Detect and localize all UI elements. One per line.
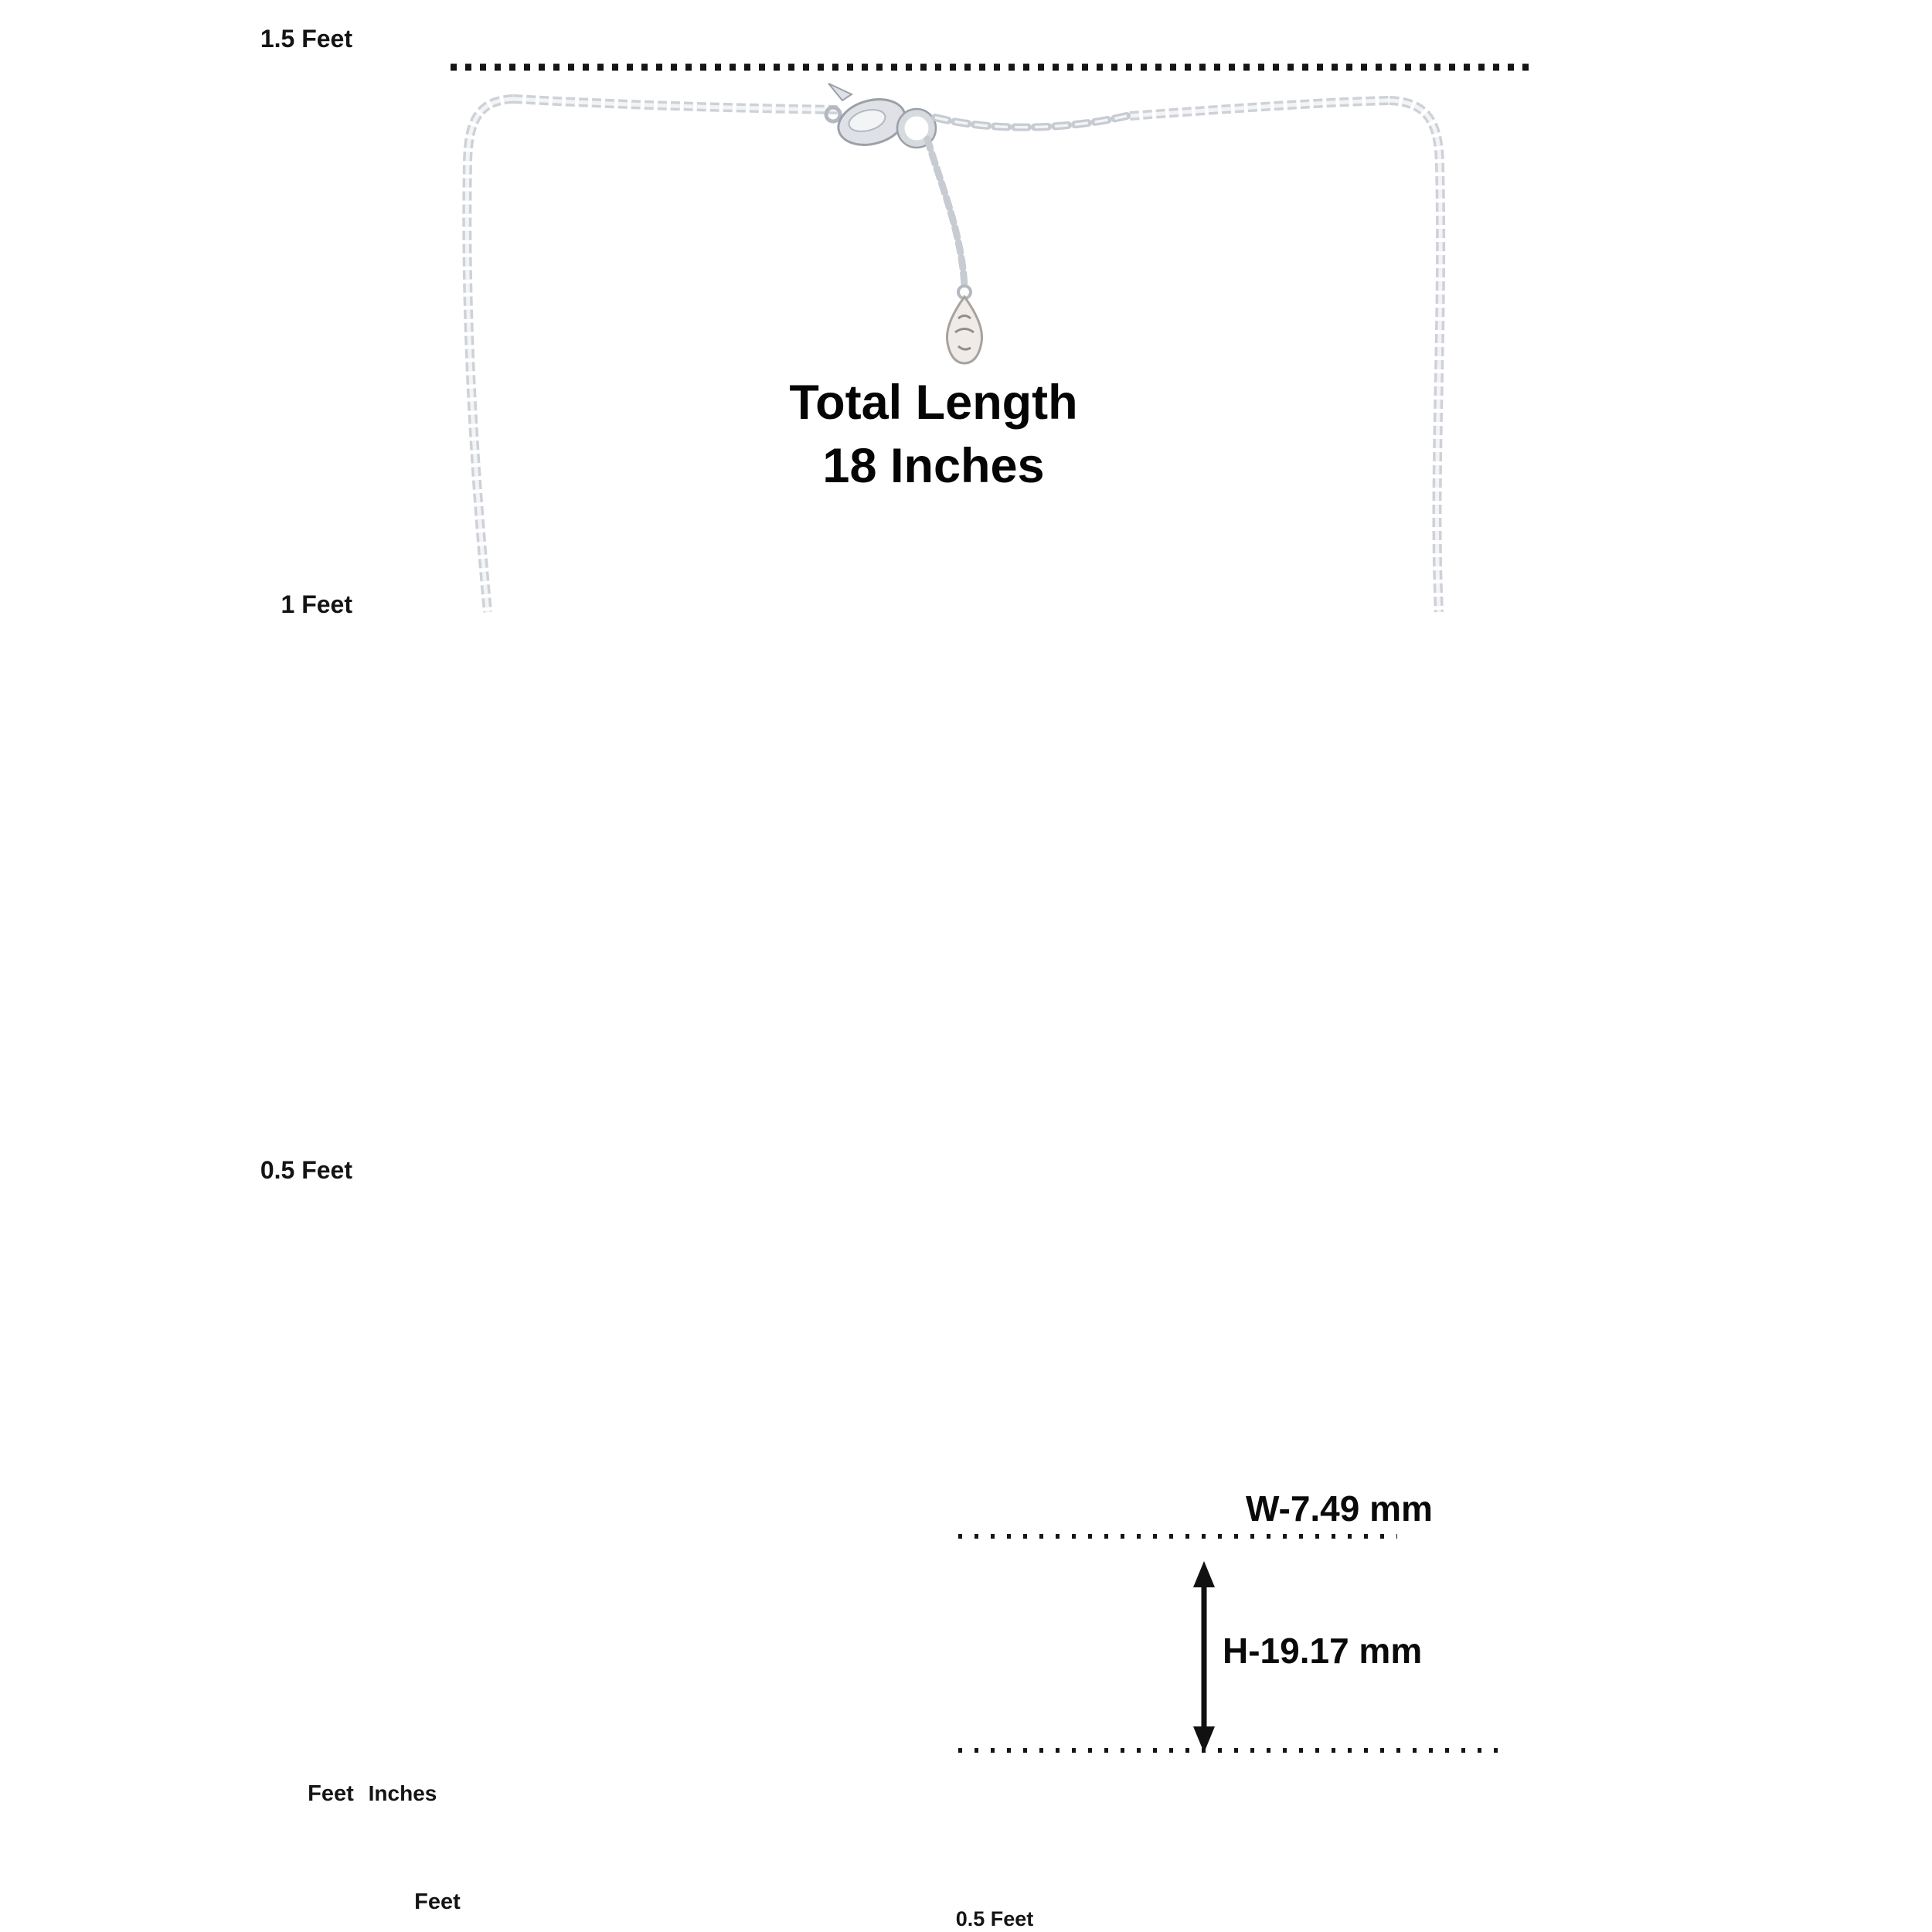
figure-canvas: Total Length 18 Inches W-7.49 mm H-19.17… [0, 0, 1932, 1932]
hr-half-foot-label: 0.5 Feet [956, 1907, 1034, 1930]
feet-mark-1-5: 1.5 Feet [260, 25, 353, 53]
inches-unit-label: Inches [369, 1781, 437, 1805]
feet-mark-1: 1 Feet [281, 590, 353, 618]
total-length-title-line1: Total Length [789, 376, 1077, 430]
background [0, 0, 1932, 1932]
feet-mark-0-5: 0.5 Feet [260, 1156, 353, 1184]
width-measurement-label: W-7.49 mm [1246, 1488, 1433, 1529]
feet-unit-label: Feet [308, 1781, 354, 1806]
height-measurement-label: H-19.17 mm [1223, 1631, 1422, 1671]
total-length-title-line2: 18 Inches [822, 439, 1044, 493]
hr-feet-unit-label: Feet [414, 1889, 461, 1914]
necklace-measurement-diagram: Total Length 18 Inches W-7.49 mm H-19.17… [0, 0, 1932, 1932]
